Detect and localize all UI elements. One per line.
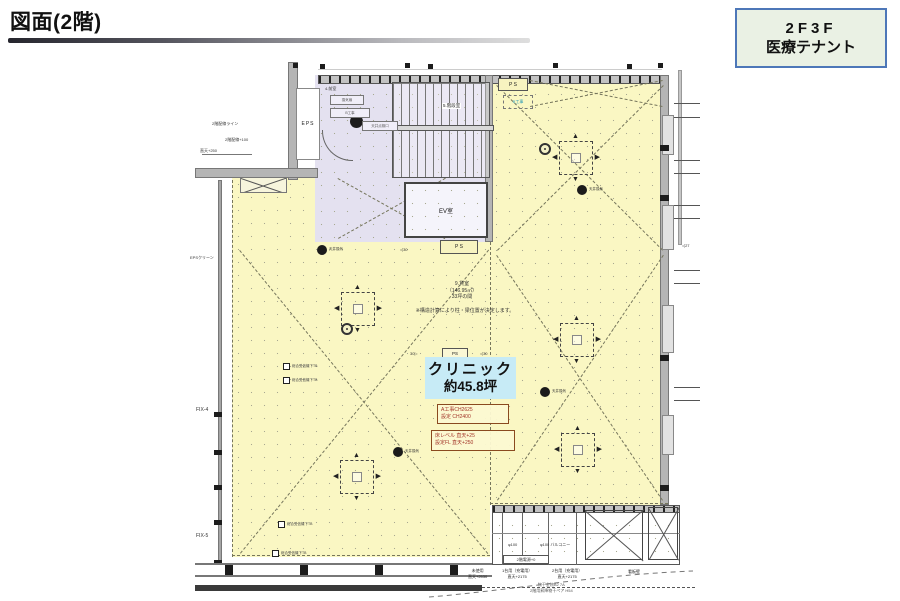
leader-line [674, 160, 700, 161]
arrow-left-icon: ◀ [552, 154, 557, 161]
core-label: 天井点検口 [371, 124, 389, 128]
clinic-name: クリニック [428, 361, 513, 379]
structure-note: ※構造計算により柱・梁位置が決定します。 [375, 308, 555, 315]
core-label-box: B工事 [330, 108, 370, 118]
wall-tab [214, 450, 222, 455]
receiver-symbol: 総合受信機下TB [272, 545, 306, 563]
title-underline [8, 38, 530, 43]
receiver-icon [272, 550, 279, 557]
arrow-up-icon: ▲ [573, 315, 580, 322]
floor-level-note-box: 床レベル 直天+25 設定FL 直天+250 [431, 430, 515, 451]
leader-line [674, 218, 700, 219]
dim-label: ◁30 [400, 247, 408, 252]
vent-label: 天井換気 [589, 187, 603, 192]
balcony-fixture [662, 415, 674, 455]
vent-label: 天井換気 [552, 389, 566, 394]
wall-marker [660, 195, 669, 201]
x-line [586, 509, 644, 559]
core-label-box: 天井点検口 [362, 121, 398, 131]
arrow-down-icon: ▼ [573, 358, 580, 365]
receiver-label: 総合受信機下TB [292, 378, 317, 382]
leader-line [674, 103, 700, 104]
wall-marker [660, 485, 669, 491]
wall-tab [214, 412, 222, 417]
ceiling-fan-icon: 天井換気 [577, 185, 587, 195]
eps-clean-label: EPSクリーン [190, 255, 214, 260]
fix4-window-label: FIX-4 [196, 407, 208, 413]
exhaust-fan-icon [341, 323, 353, 335]
arrow-down-icon: ▼ [574, 468, 581, 475]
ps-label: P S [509, 82, 517, 88]
left-annotation-2: 2階配線+100 [225, 137, 248, 142]
vent-label: 天井換気 [405, 449, 419, 454]
wall-tab [214, 520, 222, 525]
elevator-room-label: EV室 [439, 206, 453, 215]
arrow-left-icon: ◀ [553, 336, 558, 343]
arrow-left-icon: ◀ [554, 446, 559, 453]
arrow-right-icon: ▶ [597, 446, 602, 453]
receiver-symbol: 総合受信機下TB [283, 372, 317, 390]
ps-label: P S [455, 244, 463, 250]
leader-line [674, 400, 700, 401]
balcony-partition [576, 513, 577, 565]
floor-badge-line1: 2F3F [785, 19, 836, 38]
boundary-dash-left [232, 180, 233, 557]
dim-square [405, 63, 410, 68]
floor-level-line1: 床レベル 直天+25 [435, 433, 511, 440]
dim-label: ◁27 [682, 243, 690, 248]
core-label-box: 換気扇 [330, 95, 364, 105]
dim-label: ◁30 [480, 351, 488, 356]
clinic-highlight-label: クリニック 約45.8坪 [425, 357, 516, 399]
core-label: B工事 [345, 111, 354, 115]
exhaust-fan-icon [539, 143, 551, 155]
arrow-up-icon: ▲ [353, 452, 360, 459]
receiver-label: 総合受信機下TB [292, 364, 317, 368]
leader-line [674, 173, 700, 174]
receiver-symbol: 総合受信機下TB [278, 516, 312, 534]
floor-plan: EPS 5.階段室 EV室 換気扇 B工事 天井点検口 4.前室 P S B工事… [190, 55, 705, 600]
floor-level-line2: 設定FL 直天+250 [435, 440, 511, 447]
receiver-icon [283, 363, 290, 370]
dim-square [658, 63, 663, 68]
cassette-core [352, 472, 362, 482]
eps-room-label: EPS [301, 121, 314, 127]
vent-label: 天井換気 [329, 247, 343, 252]
leader-line [674, 270, 700, 271]
core-label: 換気扇 [342, 98, 353, 102]
leader-line [674, 387, 700, 388]
ps-box-top: P S [498, 78, 528, 91]
a-koji-line2: 設定 CH2400 [441, 414, 505, 421]
b-koji-dashed-box: B工事 [503, 95, 533, 109]
arrow-left-icon: ◀ [334, 305, 339, 312]
ceiling-fan-icon: 天井換気 [393, 447, 403, 457]
dim-square [293, 63, 298, 68]
receiver-icon [283, 377, 290, 384]
balcony-fixture [662, 305, 674, 353]
entry-mat-box [240, 177, 287, 193]
phi100-balcony-label: φ100 バルコニー [540, 542, 570, 547]
wall-marker [660, 355, 669, 361]
clinic-area: 約45.8坪 [444, 379, 497, 395]
ac-cassette-icon: ▲▼◀▶ [559, 141, 593, 175]
leader-line [674, 283, 700, 284]
arrow-up-icon: ▲ [354, 284, 361, 291]
receiver-label: 総合受信機下TB [281, 551, 306, 555]
receiver-label: 総合受信機下TB [287, 522, 312, 526]
leader-line [674, 205, 700, 206]
x-brace-box [648, 507, 678, 560]
wall-tab [214, 485, 222, 490]
floor-badge: 2F3F 医療テナント [735, 8, 887, 68]
a-koji-note-box: A工事CH2625 設定 CH2400 [437, 404, 509, 424]
arrow-right-icon: ▶ [595, 154, 600, 161]
column-mark [225, 565, 233, 575]
fix5-window-label: FIX-5 [196, 533, 208, 539]
arrow-right-icon: ▶ [376, 473, 381, 480]
left-annotation-1: 2階配線ライン [212, 121, 238, 126]
wall-marker [660, 145, 669, 151]
cassette-core [353, 304, 363, 314]
balcony-fixture [662, 205, 674, 250]
power-note: 2階電源+0 [517, 557, 536, 562]
x-brace-box [585, 510, 643, 560]
left-annotation-3: 直天+250 [200, 148, 217, 153]
arrow-down-icon: ▼ [353, 495, 360, 502]
floor-badge-line2: 医療テナント [766, 38, 856, 57]
x-line [585, 511, 643, 561]
eps-room: EPS [296, 88, 320, 160]
ps-box-mid: P S [440, 240, 478, 254]
phi100-label: φ100 [508, 542, 517, 547]
dim-square [553, 63, 558, 68]
ac-cassette-icon: ▲▼◀▶ [560, 323, 594, 357]
receiver-icon [278, 521, 285, 528]
dim-label: 30▷ [410, 351, 418, 356]
ac-cassette-icon: ▲▼◀▶ [561, 433, 595, 467]
elevator-room: EV室 [404, 182, 488, 238]
x-line [649, 507, 680, 559]
cassette-core [571, 153, 581, 163]
arrow-up-icon: ▲ [574, 425, 581, 432]
boundary-dash-bottom-right [490, 503, 668, 504]
column-mark [300, 565, 308, 575]
arrow-right-icon: ▶ [596, 336, 601, 343]
dimension-line [318, 69, 662, 70]
cassette-core [572, 335, 582, 345]
stair-landing-rail [386, 125, 494, 131]
ac-cassette-icon: ▲▼◀▶ [341, 292, 375, 326]
ceiling-fan-icon: 天井換気 [540, 387, 550, 397]
leader-curve [425, 567, 697, 601]
ceiling-fan-icon: 天井換気 [317, 245, 327, 255]
arrow-up-icon: ▲ [572, 133, 579, 140]
ac-cassette-icon: ▲▼◀▶ [340, 460, 374, 494]
ps-label: PS [452, 351, 458, 356]
b-koji-label: B工事 [513, 99, 524, 105]
leader-line [202, 154, 252, 155]
area-note-line3: 33坪の間 [412, 294, 512, 301]
arrow-left-icon: ◀ [333, 473, 338, 480]
left-wall [218, 180, 222, 563]
column-mark [375, 565, 383, 575]
area-note: 9.貸室 （146.95㎡） 33坪の間 [412, 281, 512, 301]
cassette-core [573, 445, 583, 455]
arrow-down-icon: ▼ [572, 176, 579, 183]
page-title: 図面(2階) [10, 6, 102, 36]
core-room-label: 4.前室 [325, 86, 336, 91]
arrow-down-icon: ▼ [354, 327, 361, 334]
leader-line [674, 117, 700, 118]
power-note-box: 2階電源+0 [503, 555, 549, 564]
boundary-dash-bottom [232, 555, 490, 556]
a-koji-line1: A工事CH2625 [441, 407, 505, 414]
stair-room-label: 5.階段室 [442, 103, 461, 109]
